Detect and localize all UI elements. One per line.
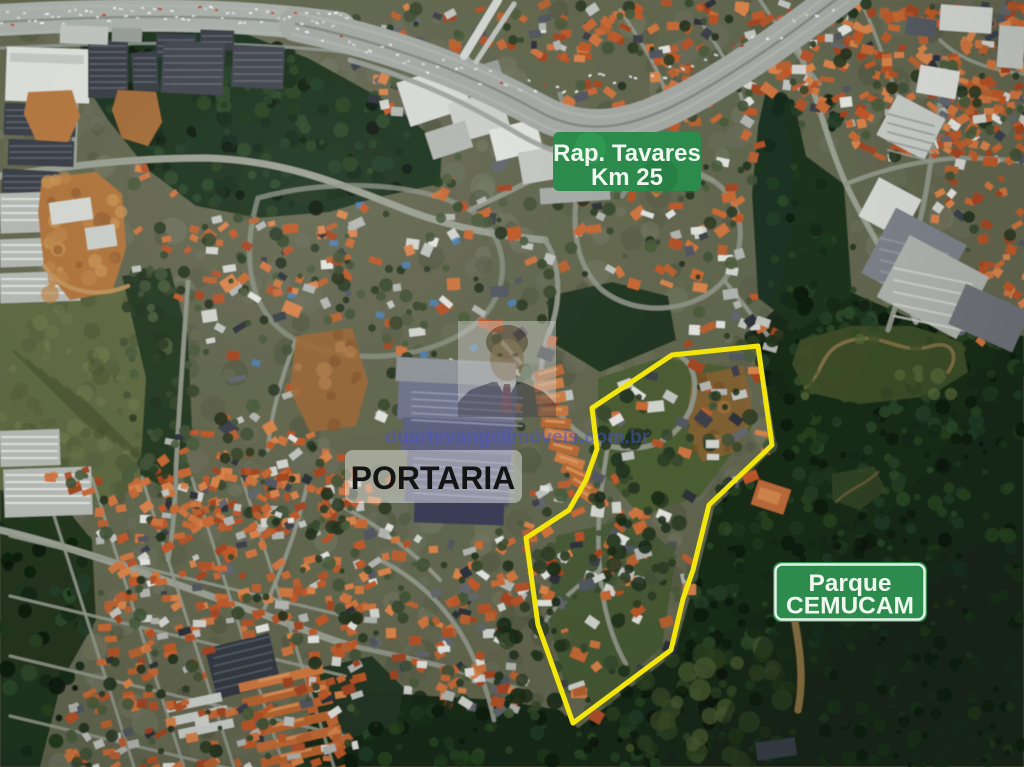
svg-text:duartevangelimóveis.com.br: duartevangelimóveis.com.br (385, 426, 650, 448)
svg-text:Rap. Tavares: Rap. Tavares (553, 140, 701, 167)
svg-text:PORTARIA: PORTARIA (351, 460, 516, 496)
svg-text:CEMUCAM: CEMUCAM (786, 593, 914, 620)
svg-text:Km 25: Km 25 (591, 164, 663, 191)
